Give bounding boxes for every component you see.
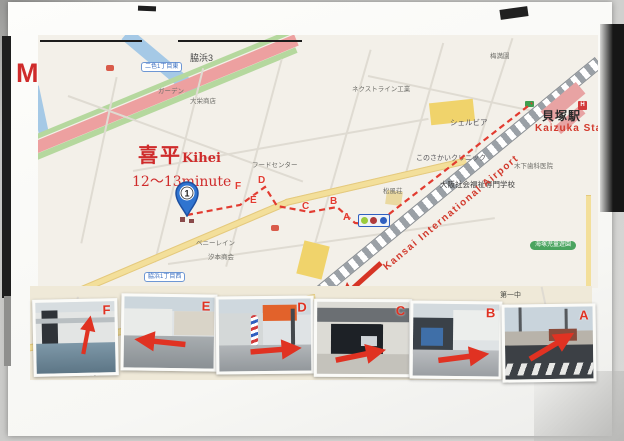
photo-letter: D: [297, 300, 307, 315]
pin-number: 1: [184, 189, 189, 199]
photo-edge-right: [600, 24, 624, 212]
photo-letter: C: [396, 303, 405, 318]
route-point-a: A: [343, 212, 350, 223]
map-top-border: [40, 40, 142, 42]
route-point-b: B: [330, 196, 337, 207]
scan-artifact: [138, 6, 156, 12]
photo-letter: E: [202, 298, 211, 313]
photo-blue-machinery: [421, 328, 443, 346]
route-photo-e: E: [120, 293, 217, 371]
destination-building: [189, 219, 194, 223]
route-photo-f: F: [32, 298, 119, 377]
airport-arrow-shaft: [351, 263, 381, 288]
route-point-f: F: [235, 181, 241, 192]
photo-edge-left: [2, 36, 11, 298]
school-label-daiichi: 第一中: [500, 290, 521, 300]
route-point-e: E: [250, 195, 257, 206]
traffic-light-green: [361, 217, 368, 224]
route-photo-d: D: [216, 295, 315, 374]
route-point-d: D: [258, 175, 265, 186]
photo-letter: F: [102, 302, 110, 317]
route-point-c: C: [302, 201, 309, 212]
photo-edge-left-lower: [4, 296, 11, 366]
photo-letter: A: [579, 307, 589, 322]
photo-crosswalk: [503, 362, 595, 375]
route-photo-b: B: [410, 301, 503, 380]
route-map: H 脇浜3 梅満園 ガーデン 大栄商店 ネクストライン工業 シェルビア このさか…: [38, 35, 598, 288]
destination-building: [180, 217, 185, 222]
route-dashed-line: [187, 103, 532, 225]
map-top-border: [178, 40, 302, 42]
route-photo-a: A: [501, 303, 596, 382]
destination-pin: 1: [173, 181, 201, 217]
route-photo-c: C: [314, 299, 412, 378]
scanned-access-map-photo: MAP H: [0, 0, 624, 441]
traffic-light-icon: [358, 214, 390, 227]
traffic-light-red: [370, 217, 377, 224]
route-overlay: [38, 35, 598, 288]
photo-letter: B: [486, 305, 496, 320]
traffic-light-blue: [380, 217, 387, 224]
